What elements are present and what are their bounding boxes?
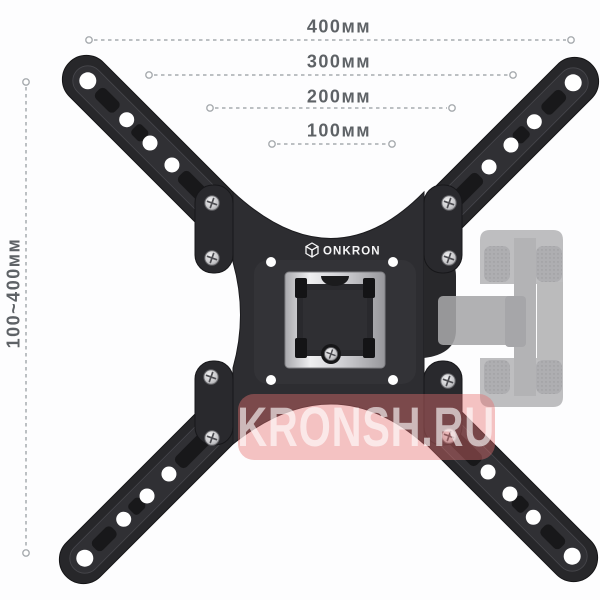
watermark-text: KRONSH.RU bbox=[238, 399, 495, 455]
dim-line-400mm bbox=[86, 37, 574, 43]
tilt-bracket bbox=[285, 272, 385, 368]
tension-screw bbox=[325, 348, 338, 361]
wall-mount-illustration: ONKRON bbox=[0, 0, 600, 600]
dim-label-100mm: 100мм bbox=[307, 121, 371, 142]
dim-line-300mm bbox=[146, 72, 516, 78]
dim-label-300mm: 300мм bbox=[307, 52, 371, 73]
product-image: ONKRON bbox=[0, 0, 600, 600]
watermark: KRONSH.RU bbox=[238, 394, 495, 460]
dim-label-200mm: 200мм bbox=[307, 87, 371, 108]
dim-label-height-range: 100~400мм bbox=[4, 238, 25, 349]
ghost-right-rail bbox=[537, 282, 563, 360]
brand-text: ONKRON bbox=[323, 246, 381, 258]
dim-line-100mm bbox=[269, 141, 395, 147]
dim-label-400mm: 400мм bbox=[307, 17, 371, 38]
